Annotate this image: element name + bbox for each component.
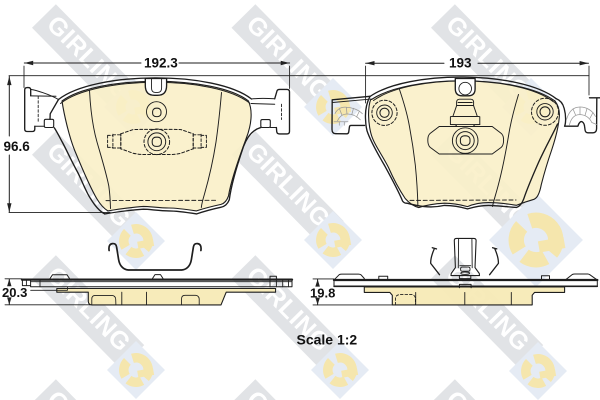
svg-text:192.3: 192.3 xyxy=(144,56,178,71)
svg-text:19.8: 19.8 xyxy=(310,286,335,301)
svg-text:96.6: 96.6 xyxy=(4,139,31,154)
svg-text:Scale 1:2: Scale 1:2 xyxy=(297,331,358,347)
svg-text:20.3: 20.3 xyxy=(2,285,27,300)
svg-text:193: 193 xyxy=(449,56,472,71)
